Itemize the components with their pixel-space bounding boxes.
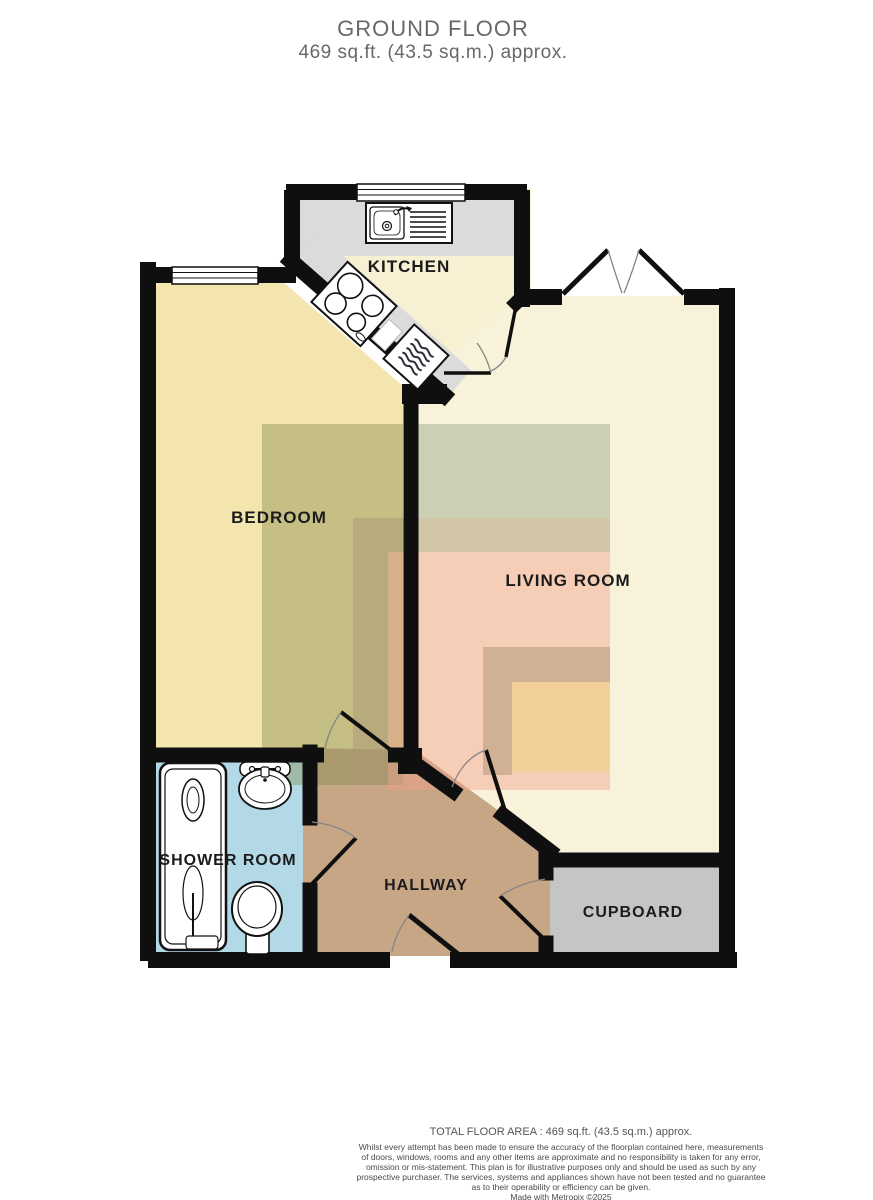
label-shower-room: SHOWER ROOM: [159, 852, 296, 869]
overlay-tan-step-arm: [483, 647, 610, 682]
shade-overlays: [262, 424, 610, 790]
disclaimer-line: Whilst every attempt has been made to en…: [276, 1142, 846, 1152]
label-living-room: LIVING ROOM: [505, 571, 630, 590]
sink-icon: [366, 203, 452, 243]
overlay-tan-step-col: [483, 682, 512, 775]
disclaimer-line: of doors, windows, rooms and any other i…: [276, 1152, 846, 1162]
plan-footer: TOTAL FLOOR AREA : 469 sq.ft. (43.5 sq.m…: [276, 1126, 846, 1200]
disclaimer-line: omission or mis-statement. This plan is …: [276, 1162, 846, 1172]
overlay-tan-column: [353, 552, 388, 785]
label-kitchen: KITCHEN: [368, 257, 451, 276]
floorplan-page: GROUND FLOOR 469 sq.ft. (43.5 sq.m.) app…: [0, 0, 873, 1200]
overlay-tan-band: [353, 518, 610, 552]
wall-junction-kitchen: [402, 384, 447, 404]
label-bedroom: BEDROOM: [231, 508, 327, 527]
label-cupboard: CUPBOARD: [583, 904, 683, 921]
basin-icon: [239, 762, 291, 809]
overlay-green: [418, 424, 610, 518]
label-hallway: HALLWAY: [384, 877, 468, 894]
total-floor-area: TOTAL FLOOR AREA : 469 sq.ft. (43.5 sq.m…: [276, 1126, 846, 1139]
floorplan-drawing: KITCHEN BEDROOM LIVING ROOM SHOWER ROOM …: [0, 0, 873, 1200]
overlay-yellow-step: [512, 682, 610, 772]
disclaimer-line: as to their operability or efficiency ca…: [276, 1182, 846, 1192]
wall-junction-hall: [398, 748, 422, 774]
kitchen-window: [357, 184, 465, 201]
credit-line: Made with Metropix ©2025: [276, 1192, 846, 1200]
french-doors: [563, 250, 684, 294]
bedroom-window: [172, 267, 258, 284]
disclaimer-line: prospective purchaser. The services, sys…: [276, 1172, 846, 1182]
